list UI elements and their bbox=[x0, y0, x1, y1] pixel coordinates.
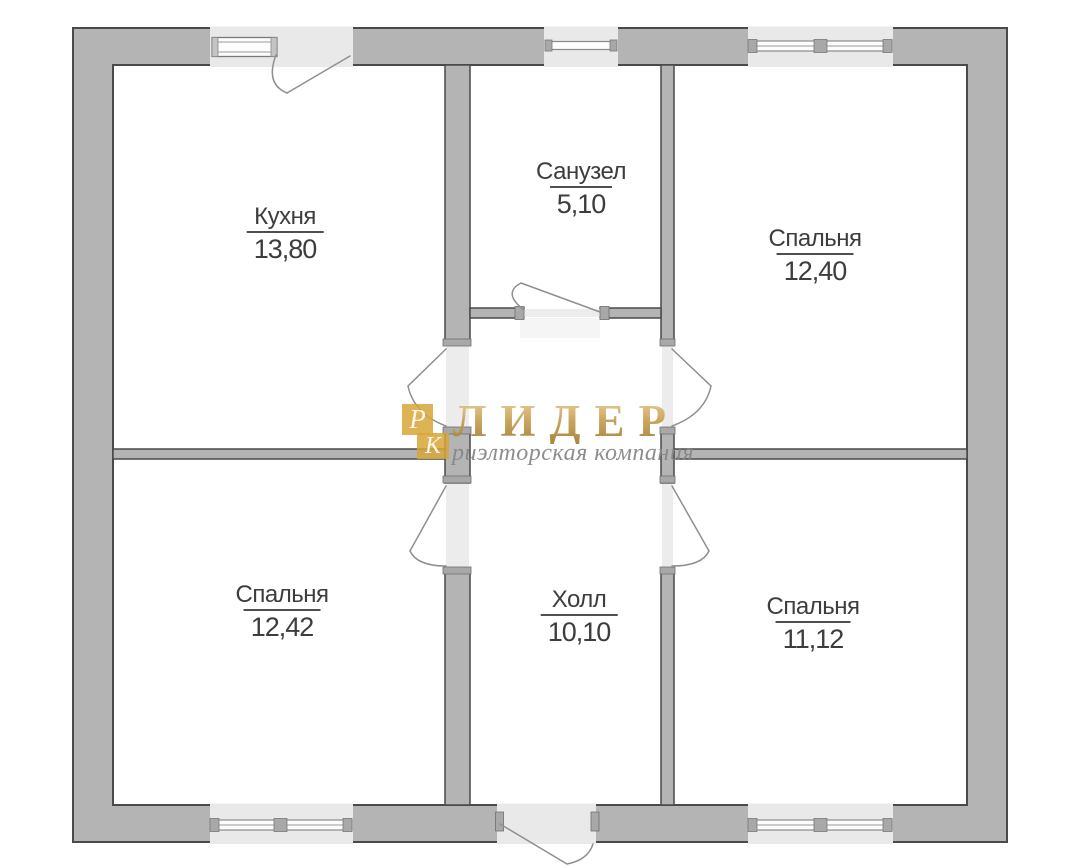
wall-bath-right-upper bbox=[661, 65, 674, 345]
room-area: 10,10 bbox=[541, 614, 618, 648]
room-area: 13,80 bbox=[247, 231, 324, 265]
room-label-bathroom: Санузел 5,10 bbox=[536, 159, 626, 220]
wall-bath-left-upper bbox=[445, 65, 470, 345]
bedroom-br-window bbox=[748, 819, 892, 832]
door-opening-bedroom-br-hall bbox=[662, 484, 673, 568]
wall-left-lower bbox=[445, 568, 470, 805]
bedroom-bl-window bbox=[210, 819, 352, 832]
wall-right-lower bbox=[661, 568, 674, 805]
room-area: 12,40 bbox=[777, 253, 854, 287]
room-area: 5,10 bbox=[550, 186, 613, 220]
bathroom-window bbox=[545, 40, 617, 51]
watermark-brand-text: ЛИДЕР bbox=[453, 399, 680, 444]
room-label-kitchen: Кухня 13,80 bbox=[247, 204, 324, 265]
entrance-door-opening bbox=[497, 804, 596, 845]
room-area: 11,12 bbox=[776, 621, 851, 655]
room-area: 12,42 bbox=[244, 609, 321, 643]
room-name: Кухня bbox=[254, 204, 316, 230]
room-name: Спальня bbox=[767, 594, 860, 620]
room-label-hall: Холл 10,10 bbox=[541, 587, 618, 648]
room-name: Холл bbox=[552, 587, 607, 613]
watermark-logo-square-k: К bbox=[417, 433, 449, 459]
room-name: Спальня bbox=[769, 226, 862, 252]
door-opening-bedroom-bl-hall bbox=[446, 484, 469, 568]
floor-plan-page: Кухня 13,80 Санузел 5,10 Спальня 12,40 С… bbox=[0, 0, 1075, 866]
bathroom-door-threshold-shade bbox=[520, 318, 600, 338]
room-label-bedroom-top-right: Спальня 12,40 bbox=[769, 226, 862, 287]
bedroom-br-door-swing bbox=[672, 486, 709, 566]
bedroom-bl-door-swing bbox=[410, 486, 446, 566]
room-name: Спальня bbox=[236, 582, 329, 608]
room-label-bedroom-bottom-right: Спальня 11,12 bbox=[767, 594, 860, 655]
kitchen-window bbox=[212, 38, 277, 57]
bedroom-tr-window bbox=[748, 40, 892, 53]
wall-middle-left bbox=[113, 449, 445, 459]
watermark-logo-square-r: Р bbox=[402, 404, 433, 435]
bathroom-door-swing bbox=[512, 283, 600, 312]
wall-middle-right bbox=[674, 449, 967, 459]
watermark-tagline-text: риэлторская компания bbox=[452, 440, 694, 466]
door-opening-bathroom bbox=[524, 309, 600, 317]
room-label-bedroom-bottom-left: Спальня 12,42 bbox=[236, 582, 329, 643]
room-name: Санузел bbox=[536, 159, 626, 185]
door-jamb-caps bbox=[443, 307, 675, 832]
